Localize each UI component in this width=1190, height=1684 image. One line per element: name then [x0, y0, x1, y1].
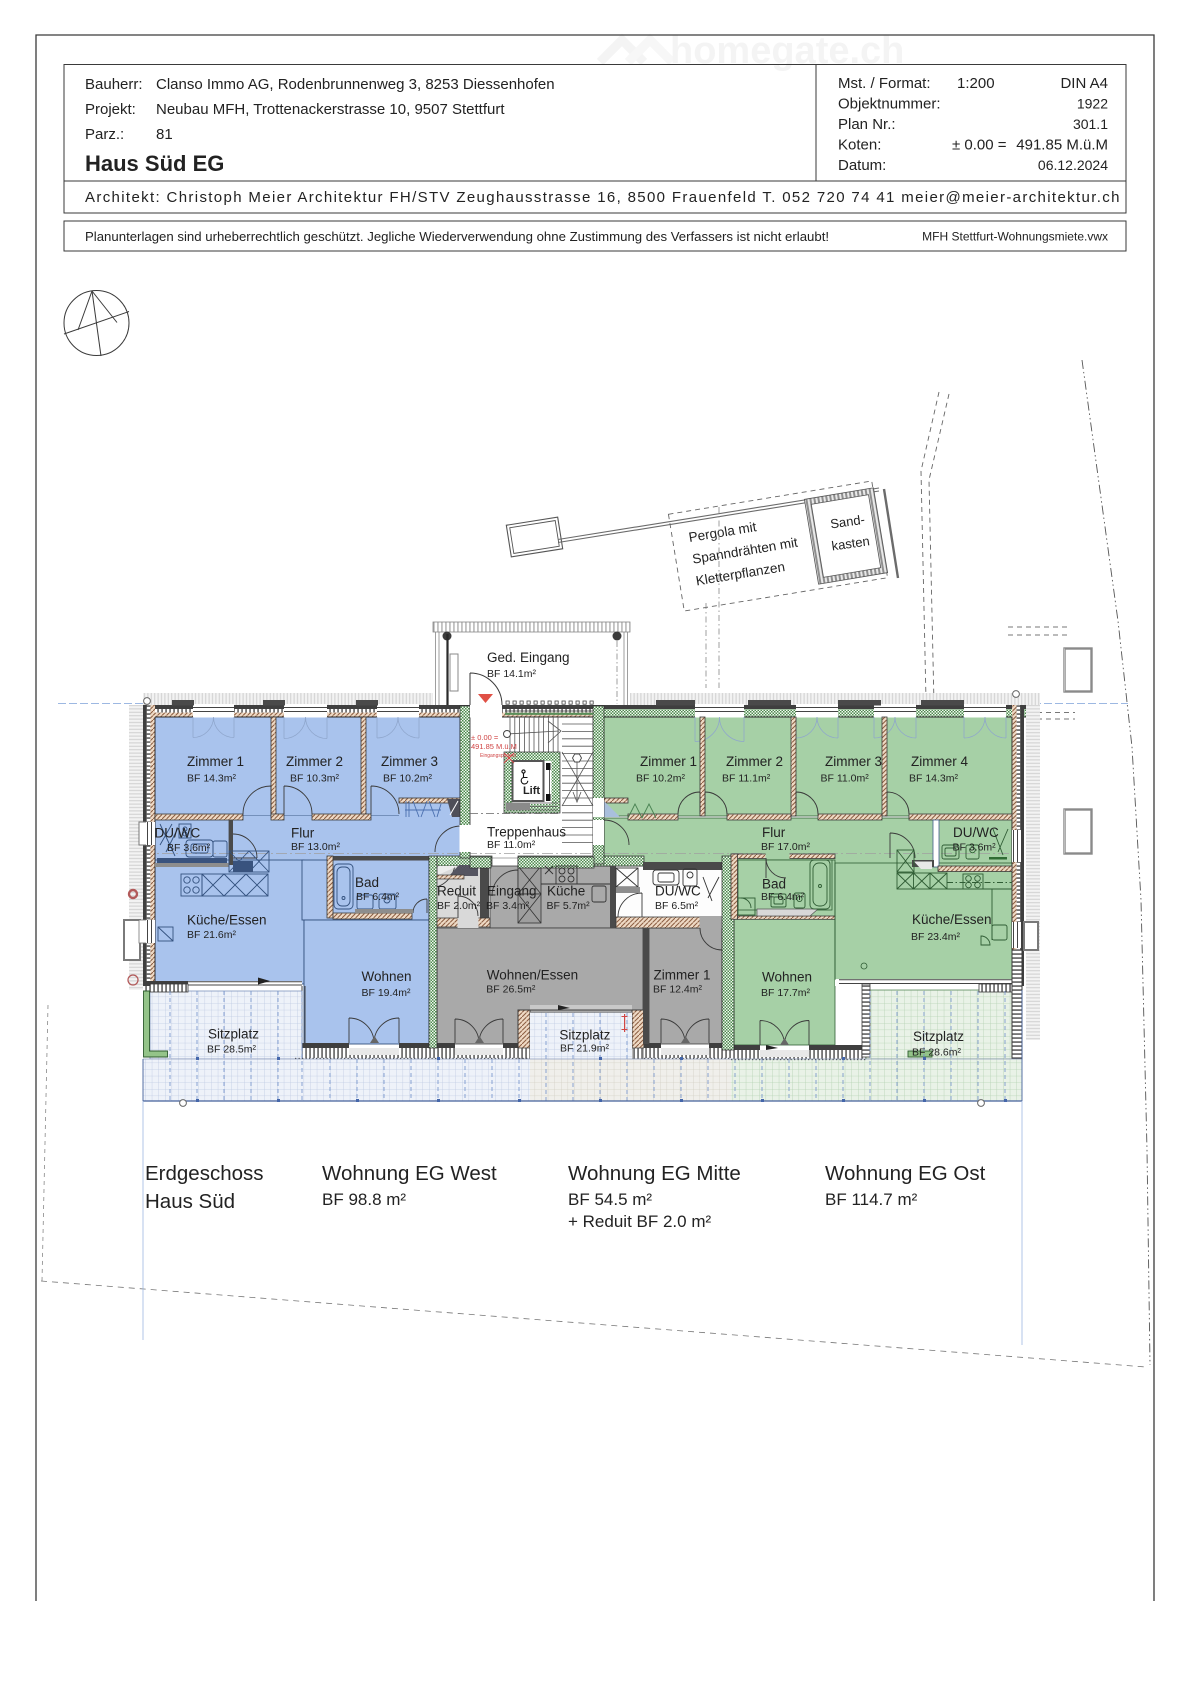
svg-text:Architekt: Christoph Meier Arc: Architekt: Christoph Meier Architektur F…: [85, 189, 1121, 206]
svg-text:DU/WC: DU/WC: [655, 883, 701, 898]
svg-text:Haus Süd EG: Haus Süd EG: [85, 151, 224, 176]
svg-text:BF 14.1m²: BF 14.1m²: [487, 668, 537, 680]
svg-text:Bauherr:: Bauherr:: [85, 76, 143, 93]
svg-text:Zimmer 1: Zimmer 1: [640, 754, 697, 769]
svg-text:Zimmer 3: Zimmer 3: [825, 754, 882, 769]
svg-text:491.85 M.ü.M: 491.85 M.ü.M: [471, 742, 517, 751]
svg-text:BF 21.6m²: BF 21.6m²: [187, 929, 237, 941]
svg-text:Mst. / Format:: Mst. / Format:: [838, 75, 931, 92]
svg-text:± 0.00 =: ± 0.00 =: [471, 733, 499, 742]
svg-text:BF 23.4m²: BF 23.4m²: [911, 931, 961, 943]
svg-text:± 0.00 =: ± 0.00 =: [952, 137, 1007, 154]
svg-text:BF 14.3m²: BF 14.3m²: [187, 773, 237, 785]
svg-text:BF 14.3m²: BF 14.3m²: [909, 773, 959, 785]
svg-text:Ged. Eingang: Ged. Eingang: [487, 650, 570, 665]
svg-text:Projekt:: Projekt:: [85, 101, 136, 118]
svg-text:Zimmer 2: Zimmer 2: [286, 754, 343, 769]
svg-text:Zimmer 3: Zimmer 3: [381, 754, 438, 769]
svg-text:DU/WC: DU/WC: [155, 826, 201, 841]
svg-text:Wohnen: Wohnen: [362, 969, 412, 984]
svg-text:Wohnung EG West: Wohnung EG West: [322, 1162, 497, 1185]
svg-text:1:200: 1:200: [957, 75, 995, 92]
svg-text:Eingang: Eingang: [487, 883, 537, 898]
svg-text:Parz.:: Parz.:: [85, 126, 124, 143]
svg-text:BF 3.4m²: BF 3.4m²: [486, 900, 530, 912]
svg-text:Wohnen/Essen: Wohnen/Essen: [487, 968, 578, 983]
svg-text:Zimmer 1: Zimmer 1: [187, 754, 244, 769]
svg-text:DIN A4: DIN A4: [1060, 75, 1108, 92]
svg-text:Treppenhaus: Treppenhaus: [487, 825, 566, 840]
svg-text:MFH Stettfurt-Wohnungsmiete.vw: MFH Stettfurt-Wohnungsmiete.vwx: [922, 230, 1108, 244]
svg-text:Küche/Essen: Küche/Essen: [912, 912, 992, 927]
svg-text:Eingangspodest: Eingangspodest: [480, 753, 516, 759]
svg-text:Sitzplatz: Sitzplatz: [208, 1027, 259, 1042]
svg-text:Planunterlagen sind urheberrec: Planunterlagen sind urheberrechtlich ges…: [85, 229, 829, 244]
svg-text:+ Reduit BF 2.0 m²: + Reduit BF 2.0 m²: [568, 1212, 711, 1231]
svg-text:Haus Süd: Haus Süd: [145, 1190, 235, 1213]
svg-text:Wohnung EG Ost: Wohnung EG Ost: [825, 1162, 986, 1185]
svg-text:Erdgeschoss: Erdgeschoss: [145, 1162, 264, 1185]
svg-text:BF 3.6m²: BF 3.6m²: [953, 841, 997, 853]
svg-text:Küche/Essen: Küche/Essen: [187, 913, 267, 928]
svg-text:Sitzplatz: Sitzplatz: [559, 1028, 610, 1043]
svg-text:BF 10.2m²: BF 10.2m²: [636, 773, 686, 785]
svg-text:1922: 1922: [1077, 96, 1108, 112]
svg-text:BF 19.4m²: BF 19.4m²: [362, 987, 412, 999]
svg-text:Zimmer 1: Zimmer 1: [654, 968, 711, 983]
svg-text:BF 6.4m²: BF 6.4m²: [356, 891, 400, 903]
svg-text:Datum:: Datum:: [838, 157, 886, 174]
svg-text:Sitzplatz: Sitzplatz: [913, 1029, 964, 1044]
svg-text:BF 11.0m²: BF 11.0m²: [487, 839, 536, 851]
svg-text:Koten:: Koten:: [838, 137, 881, 154]
svg-text:BF 114.7 m²: BF 114.7 m²: [825, 1190, 918, 1209]
svg-text:homegate.ch: homegate.ch: [670, 30, 904, 72]
svg-text:Plan Nr.:: Plan Nr.:: [838, 116, 896, 133]
svg-text:BF 5.7m²: BF 5.7m²: [547, 900, 591, 912]
svg-text:491.85 M.ü.M: 491.85 M.ü.M: [1016, 137, 1108, 154]
svg-text:BF 26.5m²: BF 26.5m²: [486, 984, 536, 996]
svg-text:BF 11.1m²: BF 11.1m²: [722, 773, 771, 785]
svg-text:06.12.2024: 06.12.2024: [1038, 157, 1108, 173]
svg-text:BF 98.8 m²: BF 98.8 m²: [322, 1190, 406, 1209]
svg-text:Flur: Flur: [762, 825, 786, 840]
svg-text:BF 21.9m²: BF 21.9m²: [560, 1042, 610, 1054]
svg-text:301.1: 301.1: [1073, 116, 1108, 132]
svg-text:Bad: Bad: [762, 876, 786, 891]
svg-text:Reduit: Reduit: [437, 883, 476, 898]
svg-text:BF 6.4m²: BF 6.4m²: [761, 891, 805, 903]
svg-text:BF 11.0m²: BF 11.0m²: [821, 773, 870, 785]
svg-text:Wohnung EG Mitte: Wohnung EG Mitte: [568, 1162, 741, 1185]
svg-text:Lift: Lift: [523, 785, 540, 797]
svg-text:BF 28.5m²: BF 28.5m²: [207, 1044, 257, 1056]
svg-text:Küche: Küche: [547, 883, 585, 898]
svg-text:Wohnen: Wohnen: [762, 969, 812, 984]
svg-text:BF 13.0m²: BF 13.0m²: [291, 841, 341, 853]
svg-text:Clanso Immo AG, Rodenbrunnenwe: Clanso Immo AG, Rodenbrunnenweg 3, 8253 …: [156, 76, 555, 93]
svg-text:BF 10.2m²: BF 10.2m²: [383, 773, 433, 785]
svg-text:BF 2.0m²: BF 2.0m²: [437, 900, 481, 912]
svg-text:Zimmer 4: Zimmer 4: [911, 754, 968, 769]
svg-text:Bad: Bad: [355, 875, 379, 890]
svg-text:BF 6.5m²: BF 6.5m²: [655, 900, 699, 912]
svg-text:Neubau MFH, Trottenackerstrass: Neubau MFH, Trottenackerstrasse 10, 9507…: [156, 101, 505, 118]
svg-text:Objektnummer:: Objektnummer:: [838, 96, 941, 113]
svg-text:BF 17.7m²: BF 17.7m²: [761, 987, 811, 999]
svg-text:BF 10.3m²: BF 10.3m²: [290, 773, 340, 785]
svg-text:Zimmer 2: Zimmer 2: [726, 754, 783, 769]
svg-text:BF 3.6m²: BF 3.6m²: [167, 842, 211, 854]
svg-text:BF 28.6m²: BF 28.6m²: [912, 1046, 962, 1058]
svg-text:DU/WC: DU/WC: [953, 825, 999, 840]
svg-text:Flur: Flur: [291, 826, 315, 841]
svg-text:81: 81: [156, 126, 173, 143]
svg-text:BF 12.4m²: BF 12.4m²: [653, 984, 703, 996]
svg-text:BF 17.0m²: BF 17.0m²: [761, 841, 811, 853]
svg-text:BF 54.5 m²: BF 54.5 m²: [568, 1190, 652, 1209]
